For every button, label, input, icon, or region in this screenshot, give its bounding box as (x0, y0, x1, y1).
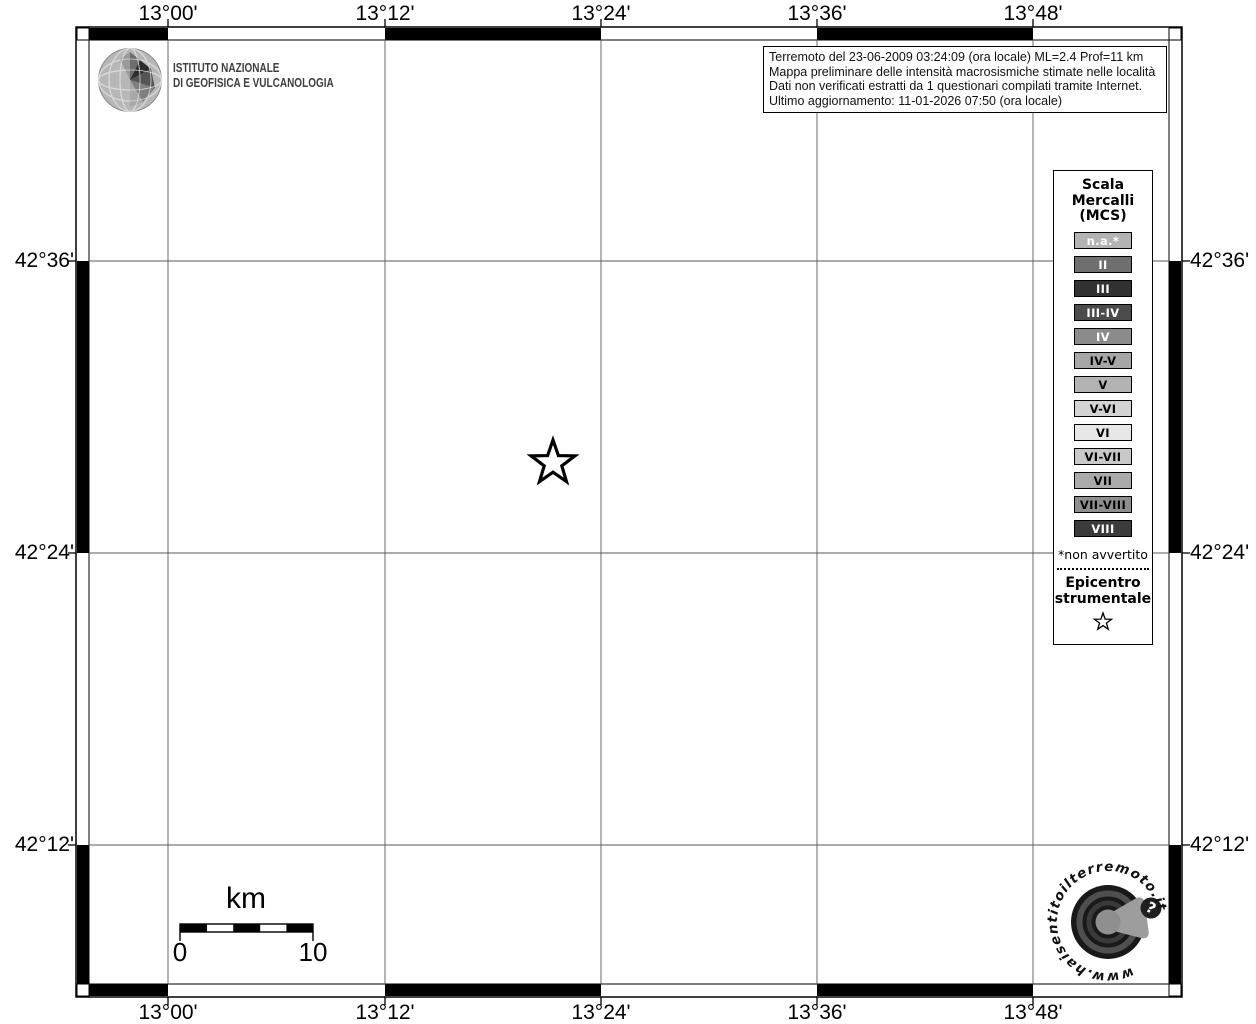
haisentito-logo-icon: ? www.haisentitoilterremoto.it (1038, 852, 1178, 992)
map-frame (76, 27, 1182, 997)
lat-label-right-0: 42°36' (1190, 248, 1249, 274)
lon-label-top-2: 13°24' (571, 1, 630, 27)
legend-scale-item: IV-V (1074, 352, 1132, 369)
lat-label-left-2: 42°12' (2, 832, 74, 858)
event-info-box: Terremoto del 23-06-2009 03:24:09 (ora l… (763, 46, 1167, 113)
legend-epicenter-line1: Epicentro (1054, 575, 1152, 592)
ingv-name: ISTITUTO NAZIONALE DI GEOFISICA E VULCAN… (173, 61, 334, 90)
legend-scale-item: VII (1074, 472, 1132, 489)
lat-label-left-1: 42°24' (2, 540, 74, 566)
legend-scale-item: V-VI (1074, 400, 1132, 417)
scale-bar-max: 10 (291, 937, 335, 968)
lon-label-top-4: 13°48' (1003, 1, 1062, 27)
legend-scale-item: III (1074, 280, 1132, 297)
haisentito-logo: ? www.haisentitoilterremoto.it (1038, 852, 1178, 997)
mercalli-legend: Scala Mercalli (MCS) n.a.* II III III-IV… (1053, 170, 1153, 645)
legend-scale-item: III-IV (1074, 304, 1132, 321)
ingv-name-line1: ISTITUTO NAZIONALE (173, 61, 334, 76)
legend-footnote: *non avvertito (1054, 547, 1152, 562)
intensity-map-page: 13°00' 13°12' 13°24' 13°36' 13°48' 13°00… (0, 0, 1256, 1024)
event-info-line4: Ultimo aggiornamento: 11-01-2026 07:50 (… (769, 94, 1161, 109)
legend-scale-item: VI (1074, 424, 1132, 441)
legend-epicenter-star-icon (1092, 611, 1114, 633)
lon-label-top-0: 13°00' (138, 1, 197, 27)
legend-epicenter-line2: strumentale (1054, 591, 1152, 608)
legend-title-line1: Scala (1054, 178, 1152, 194)
legend-title-line2: Mercalli (1054, 194, 1152, 210)
ingv-logo: ISTITUTO NAZIONALE DI GEOFISICA E VULCAN… (97, 47, 397, 115)
lon-label-top-3: 13°36' (787, 1, 846, 27)
event-info-line3: Dati non verificati estratti da 1 questi… (769, 79, 1161, 94)
legend-scale-items: n.a.* II III III-IV IV IV-V V V-VI VI VI… (1054, 232, 1152, 537)
lat-label-right-2: 42°12' (1190, 832, 1249, 858)
ingv-globe-icon (97, 47, 163, 113)
legend-epicenter-label: Epicentro strumentale (1054, 575, 1152, 608)
legend-title-line3: (MCS) (1054, 209, 1152, 225)
legend-divider (1057, 568, 1149, 570)
lat-label-right-1: 42°24' (1190, 540, 1249, 566)
legend-scale-item: V (1074, 376, 1132, 393)
scale-bar-unit: km (210, 882, 282, 916)
legend-scale-item: II (1074, 256, 1132, 273)
frame-ticks (68, 19, 1190, 1005)
lon-label-top-1: 13°12' (355, 1, 414, 27)
lon-label-bottom-4: 13°48' (1003, 1000, 1062, 1024)
lon-label-bottom-0: 13°00' (138, 1000, 197, 1024)
ingv-name-line2: DI GEOFISICA E VULCANOLOGIA (173, 76, 334, 91)
legend-scale-item: n.a.* (1074, 232, 1132, 249)
legend-scale-item: VIII (1074, 520, 1132, 537)
event-info-line2: Mappa preliminare delle intensità macros… (769, 65, 1161, 80)
scale-bar-min: 0 (166, 937, 194, 968)
event-info-line1: Terremoto del 23-06-2009 03:24:09 (ora l… (769, 50, 1161, 65)
legend-title: Scala Mercalli (MCS) (1054, 178, 1152, 225)
lon-label-bottom-2: 13°24' (571, 1000, 630, 1024)
lon-label-bottom-1: 13°12' (355, 1000, 414, 1024)
legend-scale-item: IV (1074, 328, 1132, 345)
epicenter-star-icon (531, 440, 575, 482)
lon-label-bottom-3: 13°36' (787, 1000, 846, 1024)
legend-scale-item: VII-VIII (1074, 496, 1132, 513)
grid-lines (89, 40, 1169, 984)
legend-scale-item: VI-VII (1074, 448, 1132, 465)
lat-label-left-0: 42°36' (2, 248, 74, 274)
